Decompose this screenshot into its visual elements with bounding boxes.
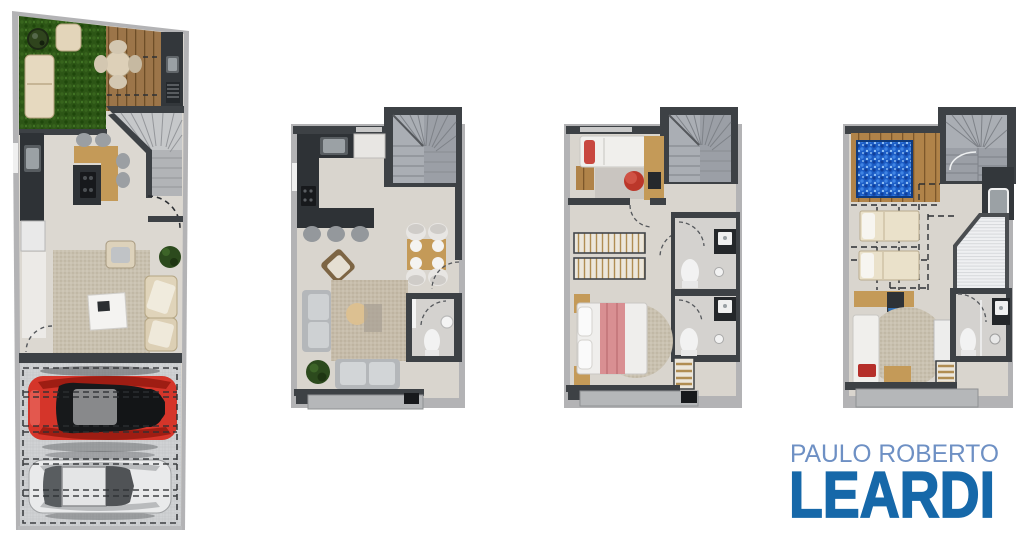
- svg-text:LEARDI: LEARDI: [789, 458, 995, 531]
